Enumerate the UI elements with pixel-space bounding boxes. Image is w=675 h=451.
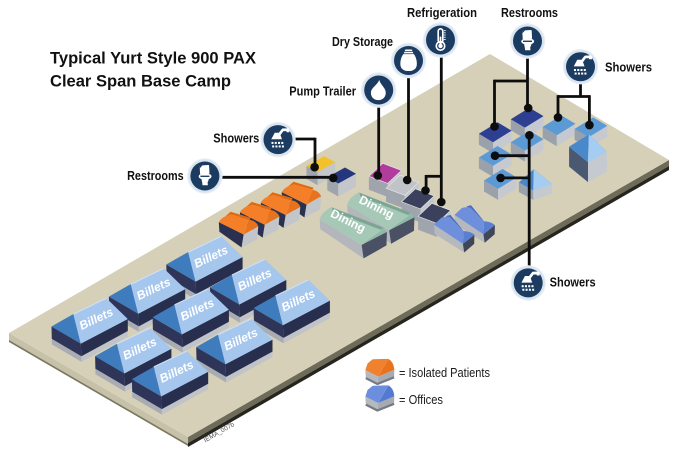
svg-text:Dry Storage: Dry Storage [332, 35, 393, 49]
svg-text:Showers: Showers [550, 276, 596, 290]
svg-text:Clear Span Base Camp: Clear Span Base Camp [50, 73, 231, 91]
svg-text:Typical Yurt Style 900 PAX: Typical Yurt Style 900 PAX [50, 50, 256, 68]
svg-text:= Offices: = Offices [399, 393, 443, 407]
svg-text:= Isolated Patients: = Isolated Patients [399, 366, 490, 380]
svg-text:Showers: Showers [213, 132, 259, 146]
svg-text:Refrigeration: Refrigeration [407, 6, 477, 20]
svg-text:Showers: Showers [605, 61, 652, 75]
svg-text:Restrooms: Restrooms [127, 169, 184, 183]
svg-text:Restrooms: Restrooms [501, 6, 558, 20]
svg-text:Pump Trailer: Pump Trailer [289, 84, 356, 98]
